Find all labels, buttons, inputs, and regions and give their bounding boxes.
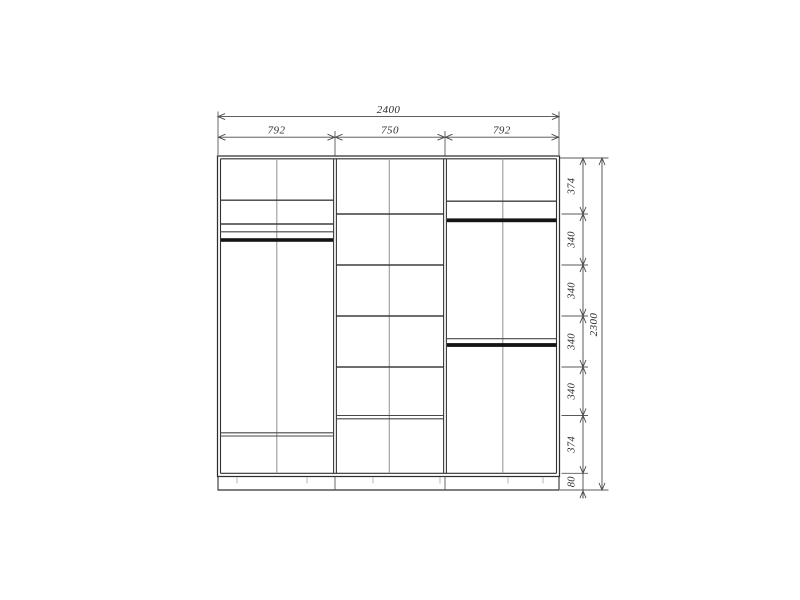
dim-label-plinth-height: 80 <box>567 476 578 488</box>
left-section <box>221 159 334 474</box>
dim-label-row-6-height: 374 <box>567 436 578 454</box>
wardrobe-technical-drawing: 2400 792 750 792 374 340 340 340 340 374 <box>0 0 800 600</box>
dimension-height-chain: 374 340 340 340 340 374 80 <box>560 158 609 499</box>
dim-label-row-1-height: 374 <box>567 177 578 195</box>
right-section <box>446 159 556 474</box>
drawing-canvas: 2400 792 750 792 374 340 340 340 340 374 <box>0 0 800 600</box>
dim-label-total-width: 2400 <box>377 104 401 116</box>
dim-label-row-4-height: 340 <box>567 333 578 351</box>
dim-label-section-3-width: 792 <box>493 124 511 136</box>
dim-label-section-2-width: 750 <box>381 124 399 136</box>
hanging-rod-bar <box>447 218 557 222</box>
dim-label-section-1-width: 792 <box>268 124 286 136</box>
middle-section <box>336 159 443 474</box>
dimension-total-height: 2300 <box>588 158 602 490</box>
hanging-rod-bar <box>221 238 333 242</box>
plinth <box>218 477 560 491</box>
dim-label-row-5-height: 340 <box>567 382 578 400</box>
dimension-section-widths: 792 750 792 <box>218 124 558 155</box>
dim-label-row-2-height: 340 <box>567 231 578 249</box>
hanging-rod-bar <box>447 343 557 347</box>
dim-label-total-height: 2300 <box>588 313 600 337</box>
dim-label-row-3-height: 340 <box>567 282 578 300</box>
